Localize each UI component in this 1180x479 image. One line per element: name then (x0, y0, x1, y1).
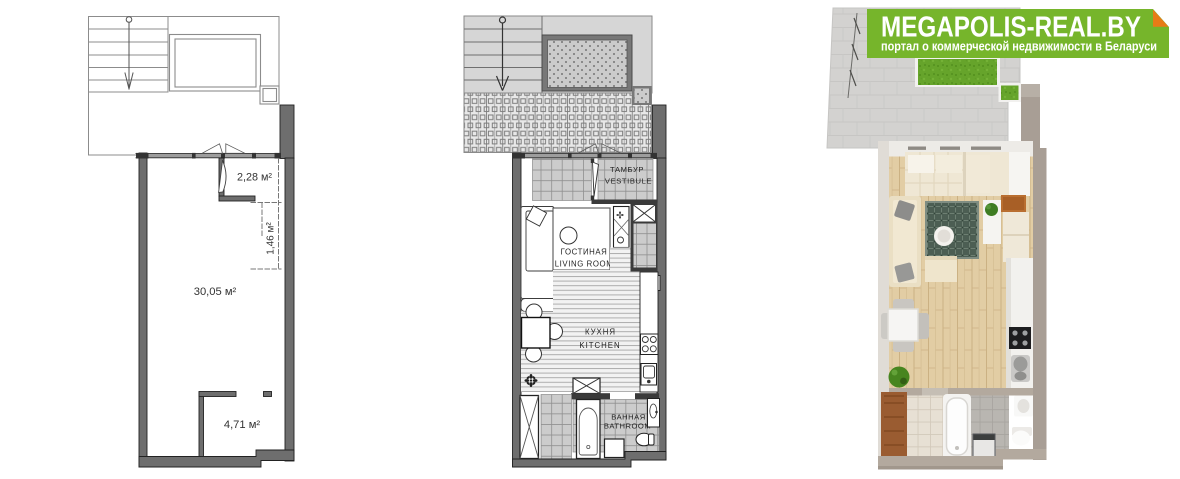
svg-text:портал о коммерческой недвижим: портал о коммерческой недвижимости в Бел… (881, 39, 1157, 54)
svg-text:VESTIBULE: VESTIBULE (605, 177, 652, 186)
svg-text:ВАННАЯ: ВАННАЯ (611, 413, 645, 422)
svg-text:LIVING ROOM: LIVING ROOM (555, 260, 614, 269)
svg-text:ГОСТИНАЯ: ГОСТИНАЯ (561, 248, 608, 257)
svg-text:30,05 м²: 30,05 м² (194, 286, 237, 298)
svg-text:2,28 м²: 2,28 м² (237, 172, 272, 184)
svg-text:ТАМБУР: ТАМБУР (610, 165, 644, 174)
svg-text:KITCHEN: KITCHEN (579, 341, 620, 350)
svg-text:4,71 м²: 4,71 м² (224, 419, 261, 431)
svg-text:КУХНЯ: КУХНЯ (585, 328, 616, 337)
svg-text:BATHROOM: BATHROOM (604, 422, 651, 431)
svg-text:1,46 м²: 1,46 м² (266, 222, 277, 255)
